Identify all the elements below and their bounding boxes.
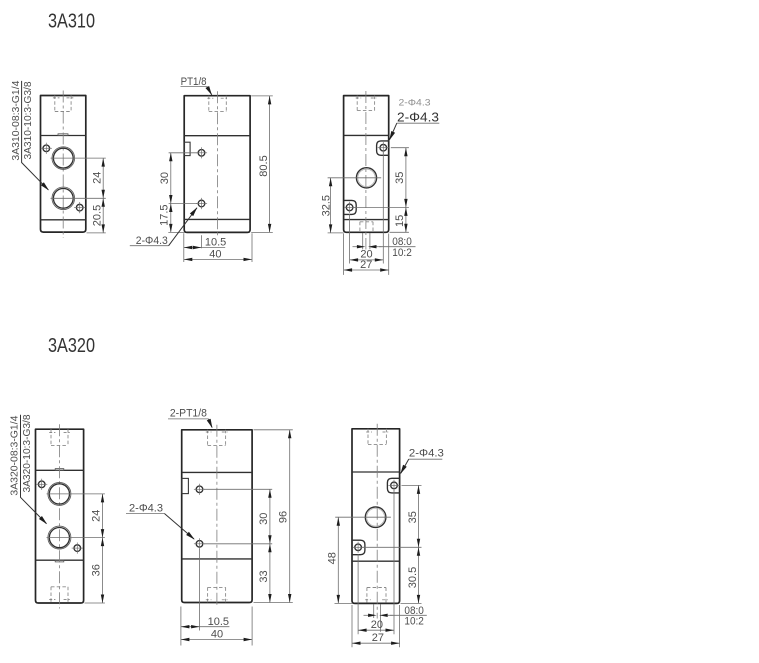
svg-text:3A310-08:3-G1/4: 3A310-08:3-G1/4 [11,80,22,160]
svg-text:24: 24 [91,172,103,184]
svg-text:32.5: 32.5 [320,195,332,216]
svg-text:27: 27 [360,259,372,271]
svg-text:3A310-10:3-G3/8: 3A310-10:3-G3/8 [23,81,34,159]
svg-text:33: 33 [258,570,270,582]
svg-text:10:2: 10:2 [392,247,412,259]
svg-text:3A320-10:3-G3/8: 3A320-10:3-G3/8 [22,414,33,492]
svg-text:40: 40 [209,249,221,261]
svg-text:2-Φ4.3: 2-Φ4.3 [397,111,439,125]
svg-text:20: 20 [371,619,383,631]
svg-text:3A320-08:3-G1/4: 3A320-08:3-G1/4 [10,415,21,495]
svg-text:10.5: 10.5 [208,616,229,628]
svg-text:30: 30 [159,172,171,184]
svg-text:2-PT1/8: 2-PT1/8 [170,407,207,419]
svg-text:36: 36 [91,564,103,576]
svg-text:3A310: 3A310 [48,11,95,33]
svg-text:35: 35 [394,172,406,184]
svg-text:35: 35 [407,511,419,523]
svg-text:80.5: 80.5 [258,155,270,176]
svg-text:2-Φ4.3: 2-Φ4.3 [409,448,444,460]
svg-text:20.5: 20.5 [91,205,103,226]
svg-text:2-Φ4.3: 2-Φ4.3 [399,97,431,108]
svg-text:30.5: 30.5 [407,567,419,588]
svg-text:3A320: 3A320 [48,335,95,357]
svg-text:48: 48 [326,552,338,564]
svg-text:40: 40 [211,629,223,641]
svg-text:24: 24 [91,510,103,522]
svg-text:96: 96 [277,511,289,523]
svg-text:27: 27 [372,632,384,644]
svg-text:17.5: 17.5 [158,204,170,225]
svg-text:2-Φ4.3: 2-Φ4.3 [129,502,163,514]
svg-text:10.5: 10.5 [205,237,226,249]
svg-text:10:2: 10:2 [404,615,424,627]
svg-text:15: 15 [394,215,406,227]
svg-text:30: 30 [258,513,270,525]
